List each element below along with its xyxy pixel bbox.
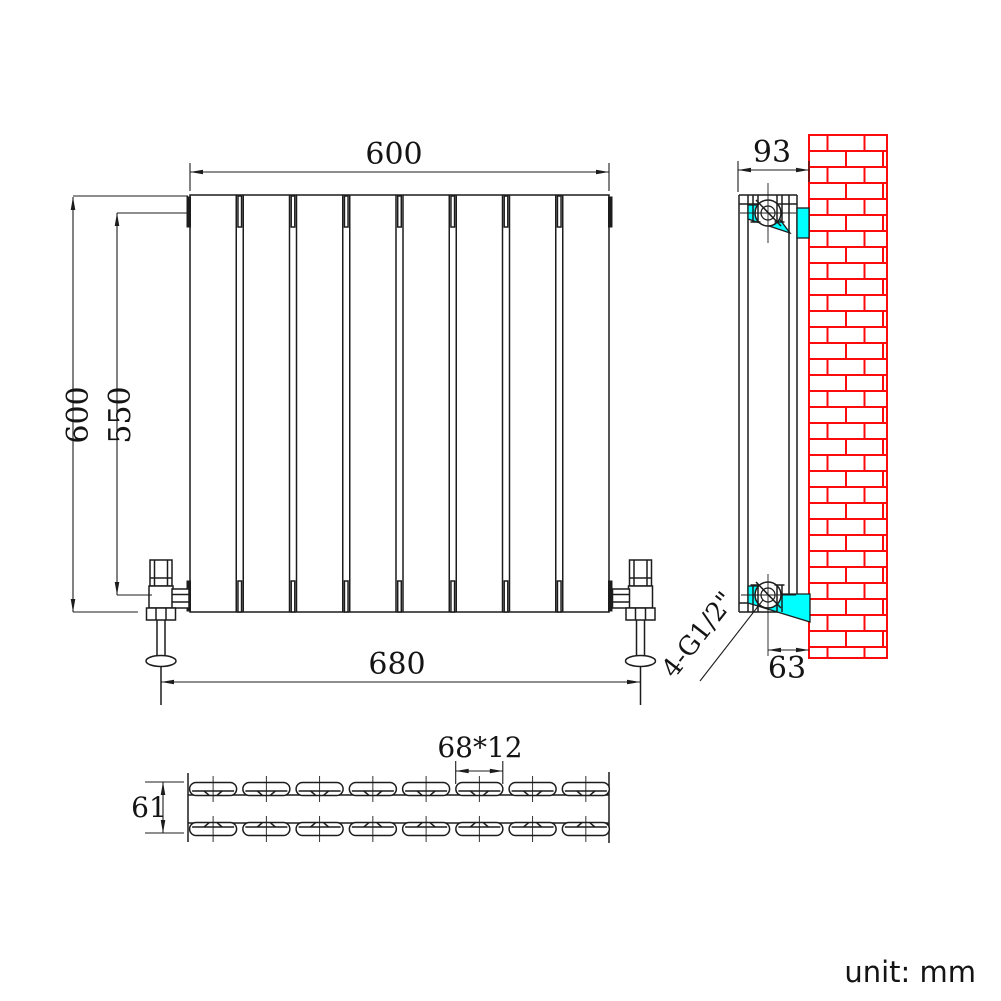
unit-note: unit: mm	[844, 955, 976, 989]
valve-right	[613, 560, 656, 705]
radiator-body	[190, 195, 609, 612]
front-view	[146, 195, 656, 705]
brick-pattern	[809, 135, 887, 658]
radiator-technical-drawing: 600 600 550 680	[0, 0, 1001, 1001]
connection-thread-label: 4-G1/2"	[656, 586, 741, 683]
section-view	[188, 772, 609, 843]
valve-left	[146, 560, 189, 705]
mounting-bracket-top	[740, 183, 809, 243]
dim-bottom-wall-offset: 63	[768, 651, 806, 686]
dim-section-depth: 61	[131, 791, 167, 824]
flat-tubes	[190, 776, 610, 842]
brick-wall	[809, 135, 887, 658]
dim-width-top: 600	[365, 137, 422, 172]
dim-inner-height: 550	[103, 386, 138, 443]
radiator-side-profile	[739, 195, 797, 612]
dim-tube-size: 68*12	[437, 731, 522, 764]
dim-valve-spacing: 680	[368, 647, 425, 682]
wall-outline	[809, 135, 887, 658]
dim-height-left: 600	[61, 386, 96, 443]
technical-drawing-page: 600 600 550 680	[0, 0, 1001, 1001]
end-cap	[608, 197, 613, 228]
end-cap	[187, 197, 192, 228]
wall-anchor-block	[797, 208, 809, 238]
dim-depth: 93	[753, 135, 791, 170]
